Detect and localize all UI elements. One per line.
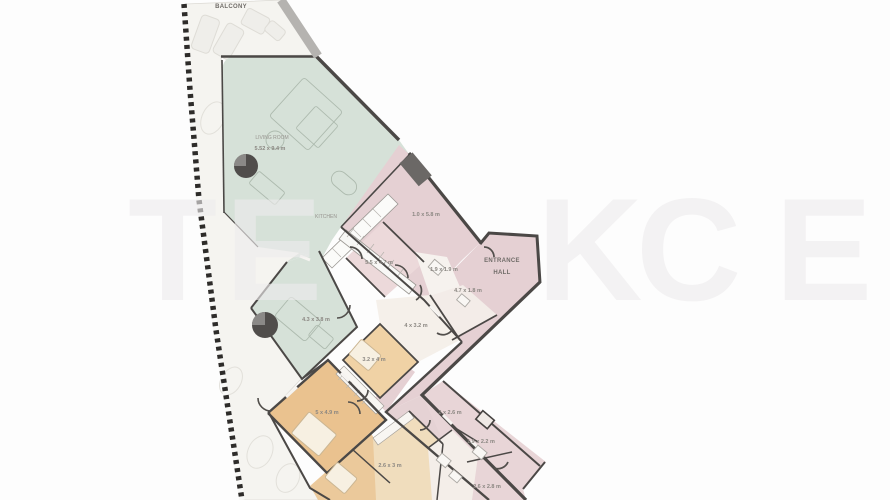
svg-text:2.6 x 3 m: 2.6 x 3 m — [378, 463, 401, 469]
svg-text:T: T — [128, 168, 217, 331]
svg-text:K: K — [537, 168, 642, 331]
svg-text:4.7 x 1.8 m: 4.7 x 1.8 m — [454, 288, 482, 294]
svg-text:3.2 x 4 m: 3.2 x 4 m — [362, 357, 385, 363]
svg-text:4 x 3.2 m: 4 x 3.2 m — [404, 323, 427, 329]
svg-text:1.0 x 5.8 m: 1.0 x 5.8 m — [412, 212, 440, 218]
svg-text:5 x 4.9 m: 5 x 4.9 m — [315, 410, 338, 416]
svg-text:2 x 2.6 m: 2 x 2.6 m — [438, 410, 461, 416]
svg-text:C: C — [636, 168, 741, 331]
svg-text:5.52 x 9.4 m: 5.52 x 9.4 m — [255, 146, 286, 152]
svg-text:LIVING ROOM: LIVING ROOM — [255, 135, 288, 141]
svg-text:BALCONY: BALCONY — [215, 4, 247, 10]
svg-text:1.9 x 2.2 m: 1.9 x 2.2 m — [467, 439, 495, 445]
svg-text:2.6 x 2.8 m: 2.6 x 2.8 m — [473, 484, 501, 490]
svg-text:5.5 x 4.7 m: 5.5 x 4.7 m — [365, 260, 393, 266]
svg-text:E: E — [225, 168, 322, 331]
svg-text:1.9 x 1.9 m: 1.9 x 1.9 m — [430, 267, 458, 273]
svg-text:ENTRANCE: ENTRANCE — [484, 258, 520, 264]
svg-text:HALL: HALL — [493, 270, 510, 276]
svg-text:E: E — [775, 168, 872, 331]
